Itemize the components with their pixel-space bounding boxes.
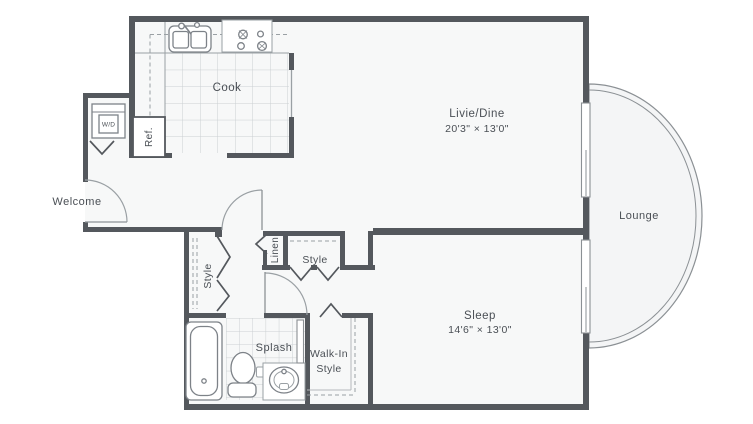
- hall-closet-top-wall: [263, 231, 345, 236]
- sleep-dimensions: 14'6" × 13'0": [448, 324, 512, 336]
- chase-left-wall: [340, 231, 345, 270]
- bathroom-vanity: [263, 363, 305, 400]
- outer-wall-right-upper: [583, 16, 589, 103]
- ref-label: Ref.: [144, 127, 155, 147]
- splash-label: Splash: [256, 342, 293, 354]
- kitchen-bottom-wall-right: [227, 153, 293, 158]
- style-right-label: Style: [302, 254, 327, 266]
- floor-plan-svg: Cook Livie/Dine 20'3" × 13'0" Lounge Wel…: [0, 0, 753, 424]
- bathroom-mirror: [297, 320, 304, 363]
- wd-nook-top-wall: [83, 93, 135, 98]
- sleep-label: Sleep: [464, 310, 496, 322]
- walkin-label-line2: Style: [316, 363, 341, 375]
- kitchen-sink: [169, 23, 211, 52]
- welcome-bottom-wall: [83, 227, 222, 232]
- cook-label: Cook: [213, 82, 242, 94]
- lounge-label: Lounge: [619, 210, 659, 222]
- bathtub: [186, 322, 222, 400]
- outer-wall-top: [129, 16, 589, 22]
- stove: [222, 20, 272, 52]
- style-left-top-stub: [215, 232, 222, 237]
- livie-dine-label: Livie/Dine: [449, 108, 505, 120]
- welcome-label: Welcome: [52, 196, 101, 208]
- kitchen-right-wall-lower: [289, 117, 294, 158]
- linen-right-wall: [283, 236, 288, 270]
- outer-wall-bottom: [184, 404, 589, 410]
- bath-top-wall-left: [184, 313, 226, 318]
- linen-label: Linen: [270, 237, 281, 263]
- living-sleep-divider-wall: [373, 228, 589, 235]
- chase-right-wall: [368, 231, 373, 270]
- outer-wall-left-upper: [83, 93, 88, 182]
- kitchen-right-wall-upper: [289, 53, 294, 70]
- bath-top-wall-right: [264, 313, 307, 318]
- style-left-label: Style: [202, 263, 214, 288]
- wd-label: W/D: [102, 122, 115, 129]
- livie-dine-dimensions: 20'3" × 13'0": [445, 123, 509, 135]
- kitchen-tile-floor: [165, 53, 289, 153]
- walkin-label-line1: Walk-In: [310, 348, 348, 360]
- floor-plan: Cook Livie/Dine 20'3" × 13'0" Lounge Wel…: [0, 0, 753, 424]
- walkin-right-wall: [368, 313, 373, 405]
- chase-bottom-wall: [340, 265, 375, 270]
- outer-wall-right-lower: [583, 333, 589, 410]
